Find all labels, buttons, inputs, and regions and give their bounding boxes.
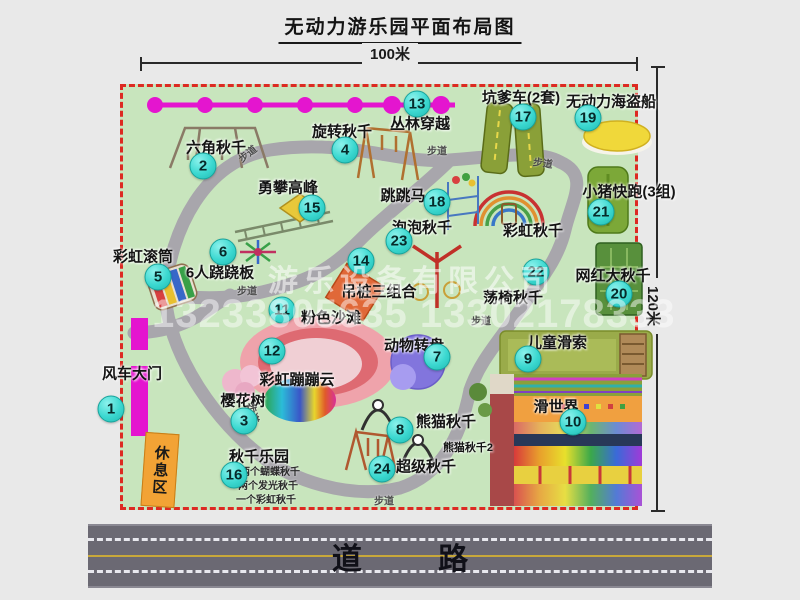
attraction-6-badge: 6 <box>210 239 237 266</box>
dimension-tick <box>651 66 665 68</box>
attraction-24-label: 超级秋千 <box>396 456 456 477</box>
footpath-label-5: 步道 <box>471 313 491 328</box>
attraction-14-badge: 14 <box>348 248 375 275</box>
width-dimension-label: 100米 <box>362 43 418 64</box>
footpath-label-2: 步道 <box>427 143 447 158</box>
rest-area-label: 休息区 <box>148 444 173 496</box>
attraction-22-badge: 22 <box>523 259 550 286</box>
rest-area: 休息区 <box>140 432 179 508</box>
attraction-5-label: 彩虹滚筒 <box>113 246 173 267</box>
attraction-3-badge: 3 <box>231 408 258 435</box>
height-dimension-label: 120米 <box>643 278 664 334</box>
attraction-9-badge: 9 <box>515 346 542 373</box>
attraction-1-badge: 1 <box>98 396 125 423</box>
attraction-22-label: 荡椅秋千 <box>483 287 543 308</box>
attraction-21-badge: 21 <box>588 199 615 226</box>
attraction-16-badge: 16 <box>221 462 248 489</box>
attraction-1-label: 风车大门 <box>102 363 162 384</box>
attraction-20-badge: 20 <box>606 281 633 308</box>
road-label: 道 路 <box>298 534 502 578</box>
swing-park-note-1: 两个蝴蝶秋千 <box>240 463 300 478</box>
rainbow-swing-label: 彩虹秋千 <box>503 220 563 241</box>
attraction-5-badge: 5 <box>145 264 172 291</box>
footpath-label-3: 步道 <box>532 153 554 171</box>
park-layout-plan: 无动力游乐园平面布局图 100米 120米 <box>0 0 800 600</box>
attraction-11-badge: 11 <box>269 297 296 324</box>
page-title: 无动力游乐园平面布局图 <box>278 12 521 44</box>
attraction-18-label: 跳跳马 <box>380 185 425 206</box>
attraction-7-badge: 7 <box>424 344 451 371</box>
dimension-tick <box>140 57 142 71</box>
attraction-4-badge: 4 <box>332 137 359 164</box>
footpath-label-7: 步道 <box>374 493 394 508</box>
attraction-8-label: 熊猫秋千 <box>416 411 476 432</box>
footpath-label-4: 步道 <box>237 283 257 298</box>
swing-park-note-3: 一个彩虹秋千 <box>236 491 296 506</box>
panda-swing-2-label: 熊猫秋千2 <box>443 439 493 455</box>
dimension-tick <box>636 57 638 71</box>
attraction-12-label: 彩虹蹦蹦云 <box>259 369 334 390</box>
dimension-tick <box>651 510 665 512</box>
attraction-14-label: 吊桩三组合 <box>341 281 416 302</box>
attraction-15-badge: 15 <box>299 195 326 222</box>
attraction-11-label: 粉色沙滩 <box>301 307 361 328</box>
windmill-gate-icon <box>131 318 148 350</box>
attraction-2-badge: 2 <box>190 153 217 180</box>
attraction-18-badge: 18 <box>424 189 451 216</box>
attraction-13-badge: 13 <box>404 91 431 118</box>
attraction-24-badge: 24 <box>369 456 396 483</box>
attraction-10-badge: 10 <box>560 409 587 436</box>
attraction-19-badge: 19 <box>575 105 602 132</box>
road: 道 路 <box>88 524 712 588</box>
attraction-17-badge: 17 <box>510 104 537 131</box>
swing-park-note-2: 两个发光秋千 <box>238 477 298 492</box>
attraction-8-badge: 8 <box>387 417 414 444</box>
attraction-12-badge: 12 <box>259 338 286 365</box>
attraction-23-badge: 23 <box>386 228 413 255</box>
